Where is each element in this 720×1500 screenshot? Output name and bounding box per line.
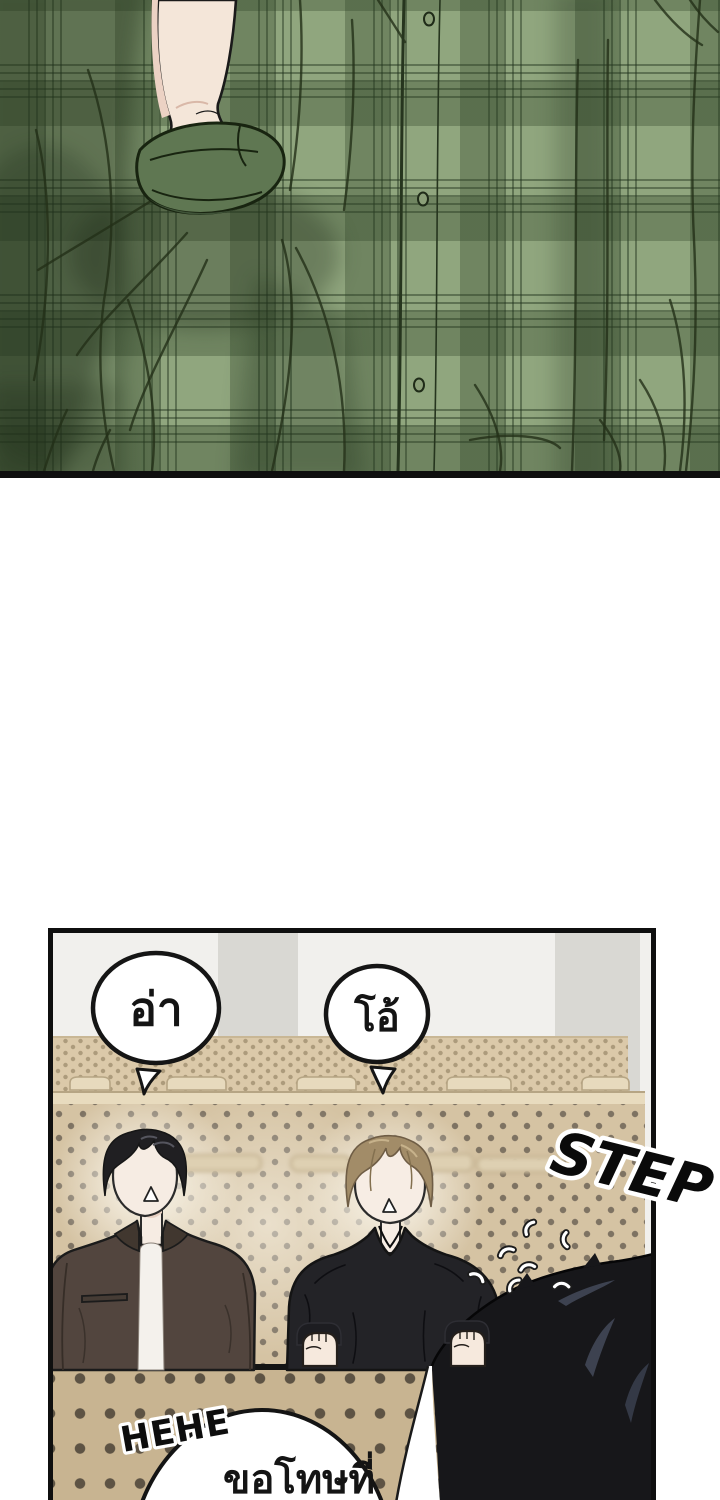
sfx-step: STEP <box>545 1118 720 1224</box>
bubble-right-text: โอ้ <box>353 994 400 1041</box>
panel-plaid-shirt <box>0 0 720 478</box>
speech-bubble-right: โอ้ <box>326 966 428 1093</box>
fist-right <box>451 1331 485 1366</box>
raised-arm <box>151 0 236 132</box>
shirt-button <box>418 193 428 206</box>
fist-left <box>303 1333 337 1366</box>
placket-line-2 <box>434 0 440 471</box>
sfx-step-container: STEP <box>538 1104 720 1224</box>
webtoon-page: อ่า โอ้ ขอโทษที่ HEHE STEP <box>0 0 720 1500</box>
shadow-right-band <box>555 0 610 471</box>
speech-bubble-left: อ่า <box>93 953 219 1094</box>
chest-pocket <box>82 1294 127 1302</box>
tshirt-stripe <box>138 1243 164 1370</box>
shirt-button <box>424 13 434 26</box>
bubble-left-text: อ่า <box>129 982 182 1036</box>
bubble-tail <box>371 1067 395 1093</box>
shirt-placket <box>398 0 440 471</box>
bubble-tail <box>137 1069 160 1094</box>
bubble-bottom-text: ขอโทษที่ <box>223 1451 375 1500</box>
placket-line <box>398 0 404 471</box>
shirt-button <box>414 379 424 392</box>
shirt-shadows <box>0 0 610 471</box>
plaid-art <box>0 0 720 471</box>
